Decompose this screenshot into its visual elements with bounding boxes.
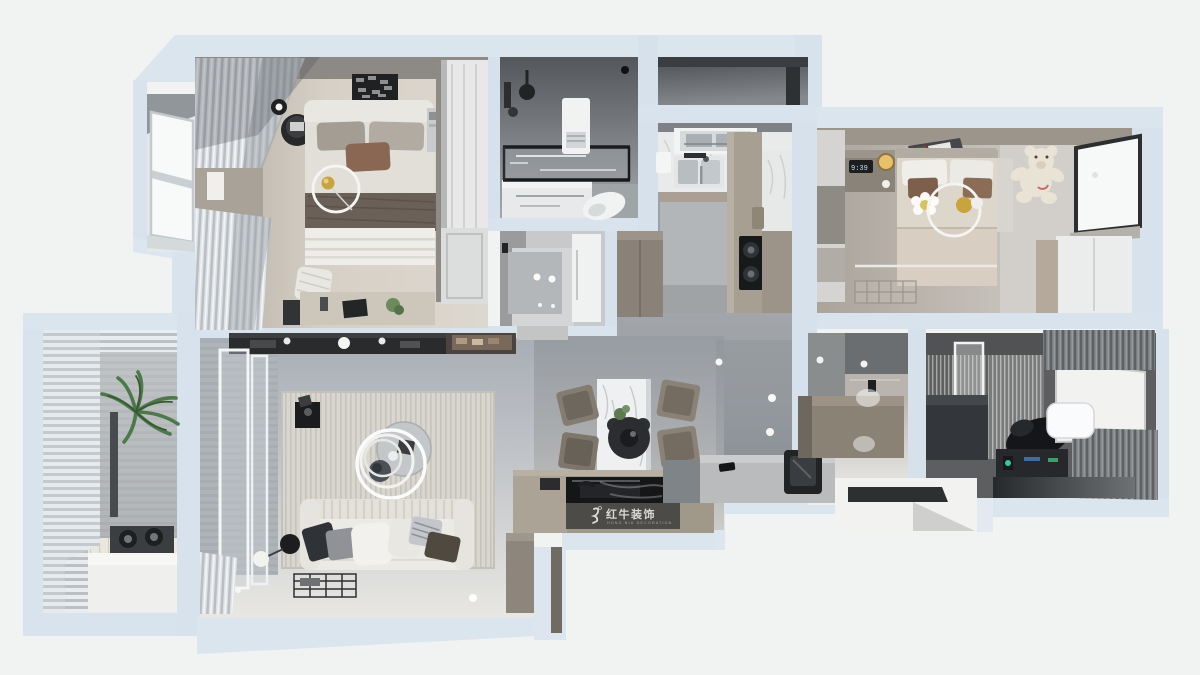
svg-text:9:39: 9:39 (851, 165, 868, 173)
svg-text:HONG NIU DECORATION: HONG NIU DECORATION (607, 521, 672, 525)
svg-text:红牛装饰: 红牛装饰 (606, 507, 656, 521)
